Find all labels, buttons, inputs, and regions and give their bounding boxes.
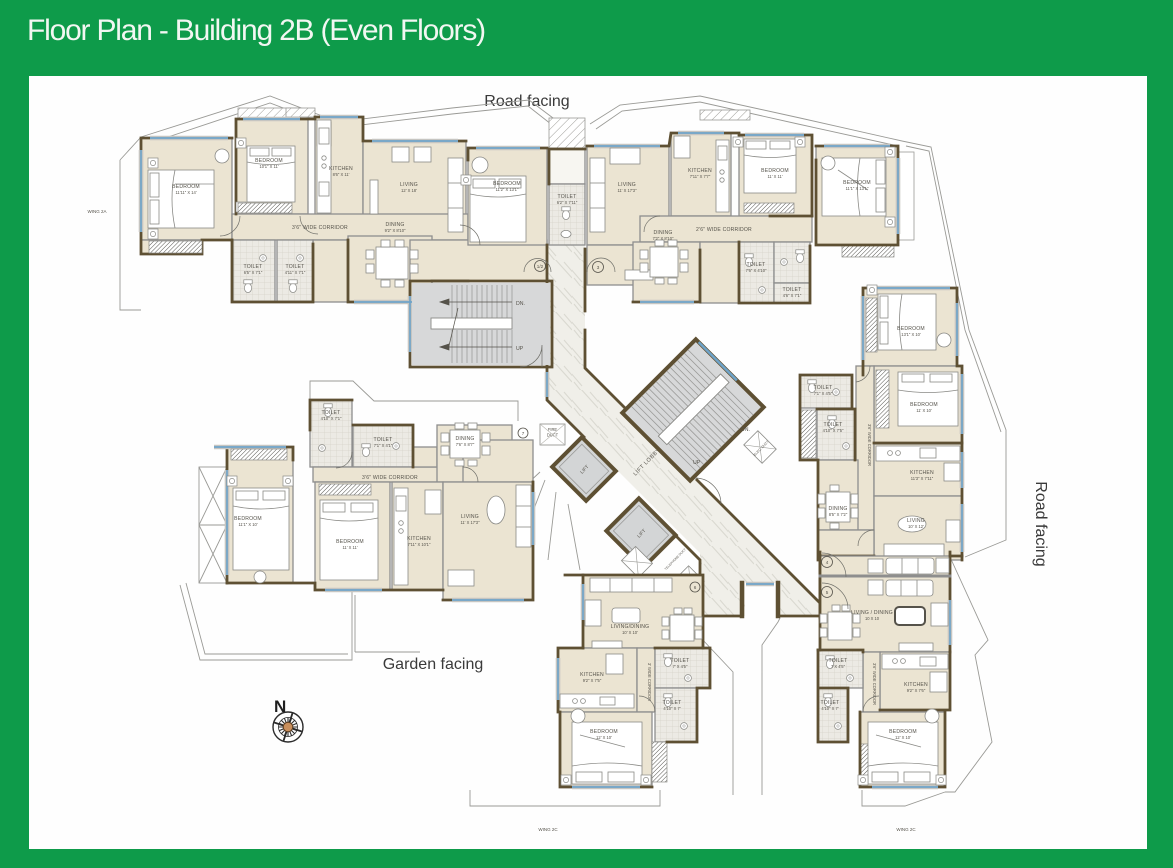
svg-text:4'10" X 7'5": 4'10" X 7'5" [823, 428, 844, 433]
svg-text:4'6" X 7'1": 4'6" X 7'1" [783, 293, 802, 298]
svg-text:Road facing: Road facing [484, 93, 569, 110]
svg-text:UP: UP [516, 346, 524, 352]
svg-text:6: 6 [694, 585, 697, 590]
svg-text:10'1" X 11': 10'1" X 11' [259, 164, 278, 169]
svg-text:12' X 10': 12' X 10' [895, 735, 911, 740]
svg-text:13'1" X 10': 13'1" X 10' [901, 332, 921, 337]
svg-text:9'2" X 8'10": 9'2" X 8'10" [385, 228, 406, 233]
svg-text:12' X 18': 12' X 18' [401, 188, 417, 193]
svg-text:11' X 17'3": 11' X 17'3" [617, 188, 637, 193]
svg-text:Floor Plan - Building 2B (Even: Floor Plan - Building 2B (Even Floors) [27, 14, 485, 47]
svg-text:10' X 12': 10' X 12' [908, 524, 924, 529]
svg-text:9'2" X 7'5": 9'2" X 7'5" [583, 678, 602, 683]
svg-text:11' X 10': 11' X 10' [916, 408, 932, 413]
svg-text:7'11" X 7'7": 7'11" X 7'7" [690, 174, 711, 179]
svg-text:4: 4 [826, 560, 829, 565]
svg-text:8'5" X 7'2": 8'5" X 7'2" [829, 512, 848, 517]
svg-text:WING 2C: WING 2C [538, 827, 558, 832]
svg-text:11' X 11': 11' X 11' [767, 174, 782, 179]
svg-text:7'6" X 8'7": 7'6" X 8'7" [456, 442, 475, 447]
svg-text:11'11" X 14': 11'11" X 14' [175, 190, 196, 195]
svg-text:6'5" X 7'1": 6'5" X 7'1" [244, 270, 263, 275]
svg-text:3'6" WIDE CORRIDOR: 3'6" WIDE CORRIDOR [872, 663, 877, 705]
svg-text:7'6" X 4'10": 7'6" X 4'10" [746, 268, 767, 273]
svg-text:3' WIDE CORRIDOR: 3' WIDE CORRIDOR [647, 663, 652, 701]
svg-text:7: 7 [522, 431, 525, 436]
svg-text:7'1" X 4'5": 7'1" X 4'5" [814, 391, 833, 396]
svg-text:3'6" WIDE CORRIDOR: 3'6" WIDE CORRIDOR [867, 424, 872, 466]
svg-text:4'10" X 7': 4'10" X 7' [821, 706, 838, 711]
svg-text:4'11" X 7'1": 4'11" X 7'1" [285, 270, 306, 275]
svg-text:10' X 10': 10' X 10' [622, 630, 638, 635]
svg-text:7'1" X 4'1": 7'1" X 4'1" [374, 443, 393, 448]
svg-text:6'2" X 7'11": 6'2" X 7'11" [557, 200, 578, 205]
svg-text:10 X 10: 10 X 10 [865, 616, 880, 621]
svg-text:9'2" X 7'6": 9'2" X 7'6" [907, 688, 926, 693]
svg-text:5: 5 [826, 590, 829, 595]
svg-text:N: N [274, 697, 286, 716]
svg-text:11'1" X 10': 11'1" X 10' [238, 522, 257, 527]
svg-text:Garden facing: Garden facing [383, 656, 484, 673]
svg-text:3: 3 [597, 265, 600, 270]
svg-text:UP: UP [693, 460, 701, 466]
svg-text:7 X 4'5": 7 X 4'5" [831, 664, 846, 669]
svg-text:8'6" X 11': 8'6" X 11' [333, 172, 350, 177]
svg-text:11' X 17'3": 11' X 17'3" [460, 520, 480, 525]
svg-text:1/2: 1/2 [537, 264, 544, 269]
svg-text:7' X 4'5": 7' X 4'5" [673, 664, 688, 669]
svg-text:11'2" X 13'1": 11'2" X 13'1" [496, 187, 519, 192]
svg-text:WING 2A: WING 2A [87, 209, 106, 214]
svg-text:Road facing: Road facing [1032, 481, 1049, 566]
svg-text:11' X 11': 11' X 11' [342, 545, 357, 550]
svg-text:2'6" WIDE CORRIDOR: 2'6" WIDE CORRIDOR [696, 227, 752, 233]
svg-text:3'6" WIDE CORRIDOR: 3'6" WIDE CORRIDOR [362, 475, 418, 481]
svg-text:3'6" WIDE CORRIDOR: 3'6" WIDE CORRIDOR [292, 225, 348, 231]
svg-text:11'1" X 13'1": 11'1" X 13'1" [846, 186, 869, 191]
svg-text:4'10" X 7'1": 4'10" X 7'1" [321, 416, 342, 421]
svg-text:11'3" X 7'11": 11'3" X 7'11" [911, 476, 934, 481]
svg-text:WING 2C: WING 2C [896, 827, 916, 832]
svg-text:DN.: DN. [516, 301, 525, 307]
svg-text:4'10" X 7': 4'10" X 7' [663, 706, 680, 711]
svg-text:12' X 10': 12' X 10' [596, 735, 612, 740]
svg-text:7'2" X 8'10": 7'2" X 8'10" [653, 236, 674, 241]
svg-text:DN.: DN. [741, 427, 750, 433]
svg-text:7'11" X 10'1": 7'11" X 10'1" [408, 542, 431, 547]
